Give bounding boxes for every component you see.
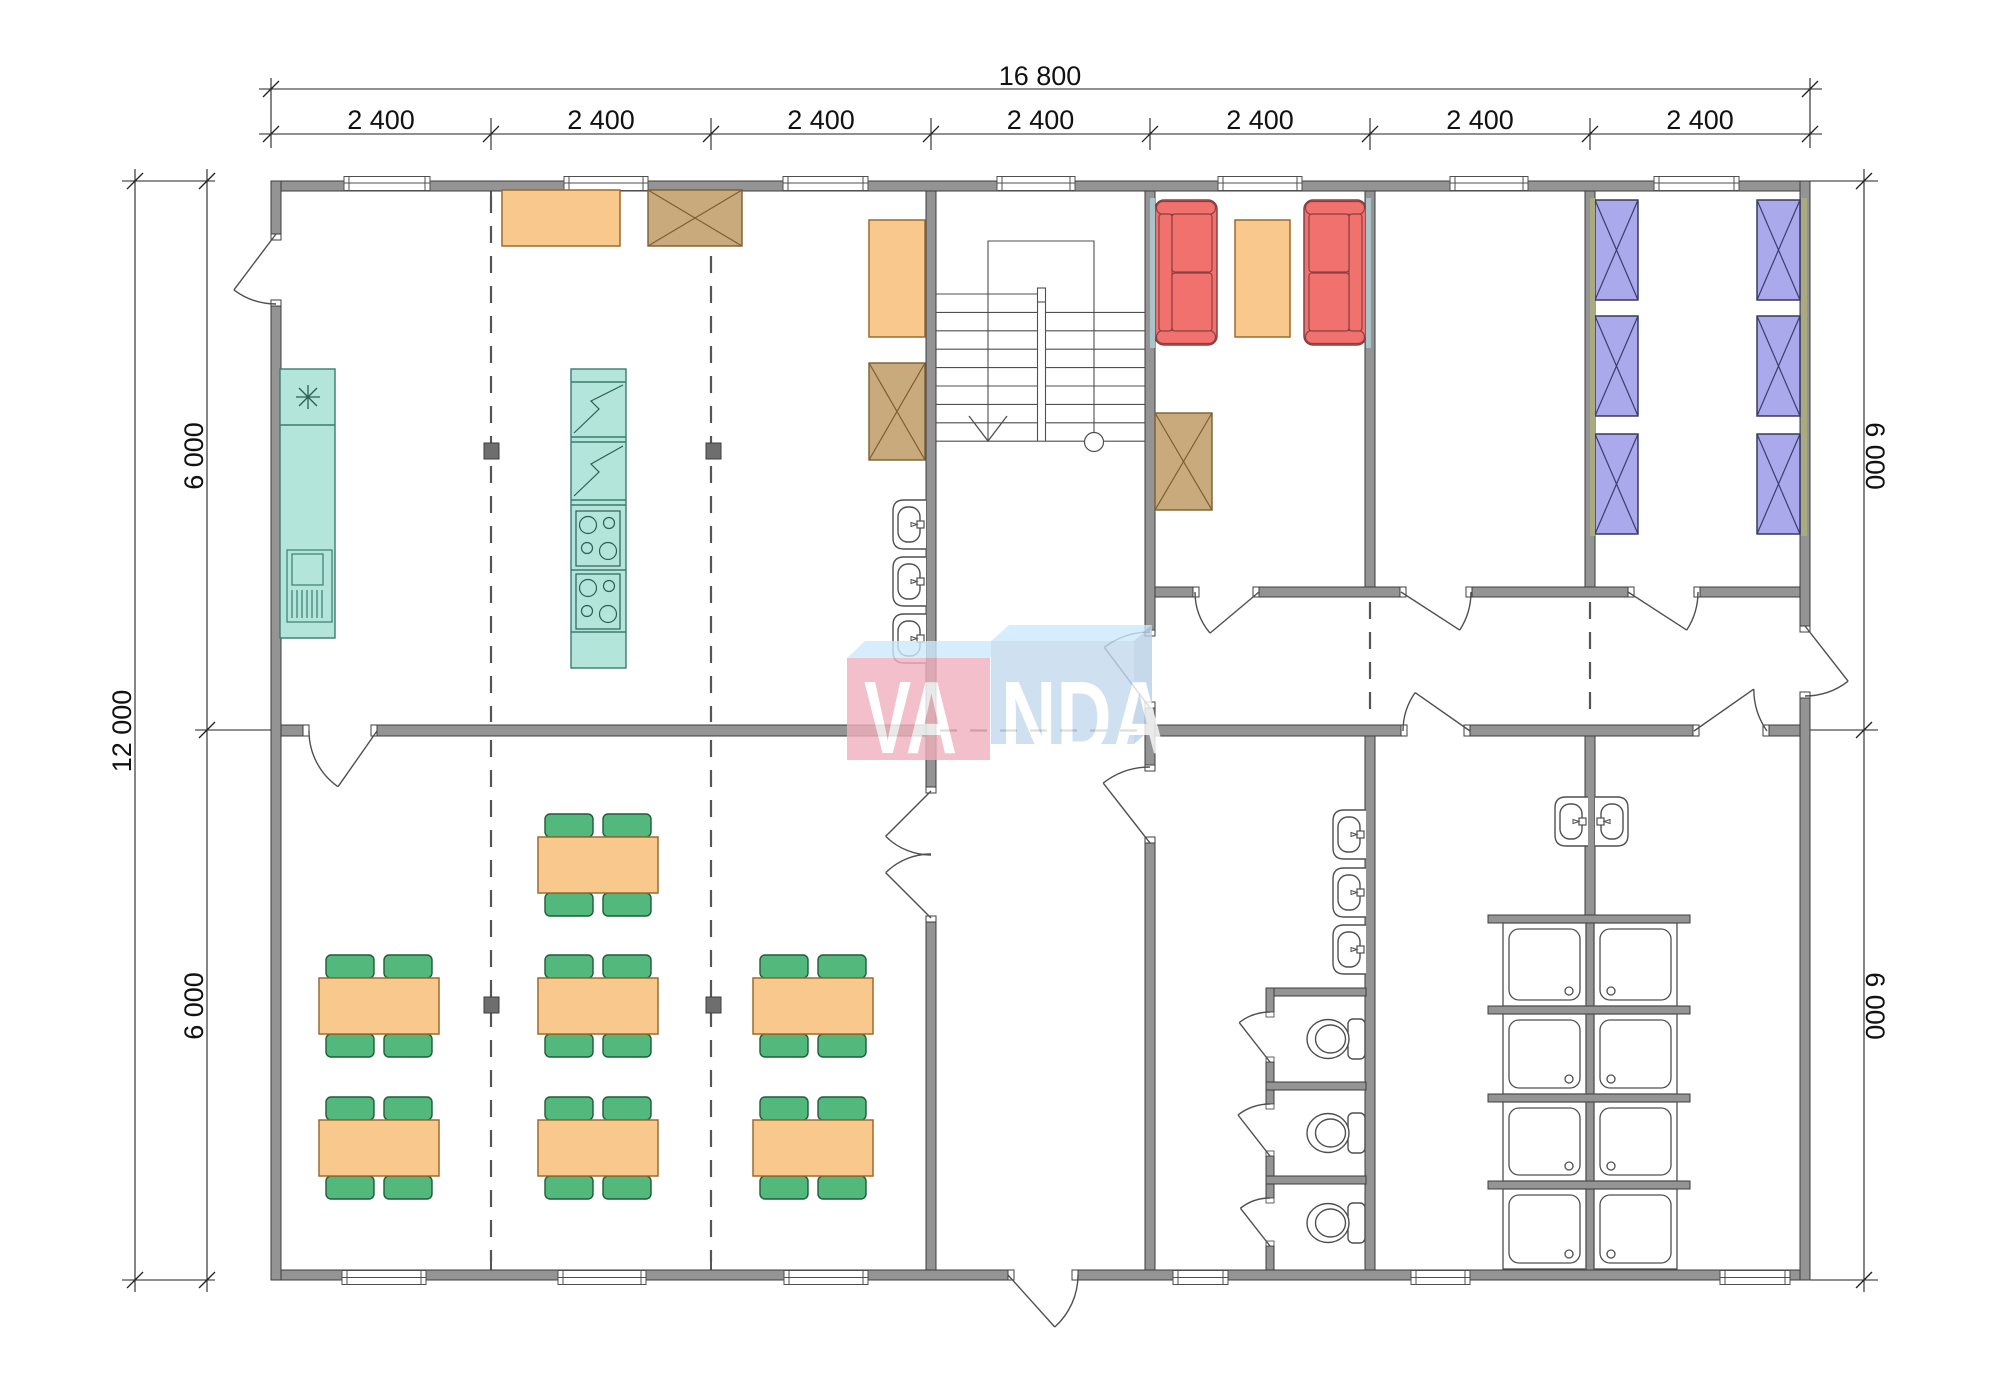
- svg-text:6 000: 6 000: [1860, 422, 1890, 490]
- svg-text:NDA: NDA: [1001, 660, 1167, 775]
- svg-text:2 400: 2 400: [1666, 105, 1734, 135]
- svg-text:6 000: 6 000: [1860, 972, 1890, 1040]
- svg-text:16 800: 16 800: [999, 61, 1082, 91]
- svg-text:2 400: 2 400: [347, 105, 415, 135]
- svg-text:VA: VA: [864, 660, 957, 775]
- svg-text:2 400: 2 400: [1007, 105, 1075, 135]
- svg-text:2 400: 2 400: [567, 105, 635, 135]
- svg-text:2 400: 2 400: [787, 105, 855, 135]
- svg-text:2 400: 2 400: [1446, 105, 1514, 135]
- svg-text:2 400: 2 400: [1226, 105, 1294, 135]
- svg-text:6 000: 6 000: [179, 972, 209, 1040]
- svg-text:6 000: 6 000: [179, 422, 209, 490]
- svg-text:12 000: 12 000: [107, 690, 137, 773]
